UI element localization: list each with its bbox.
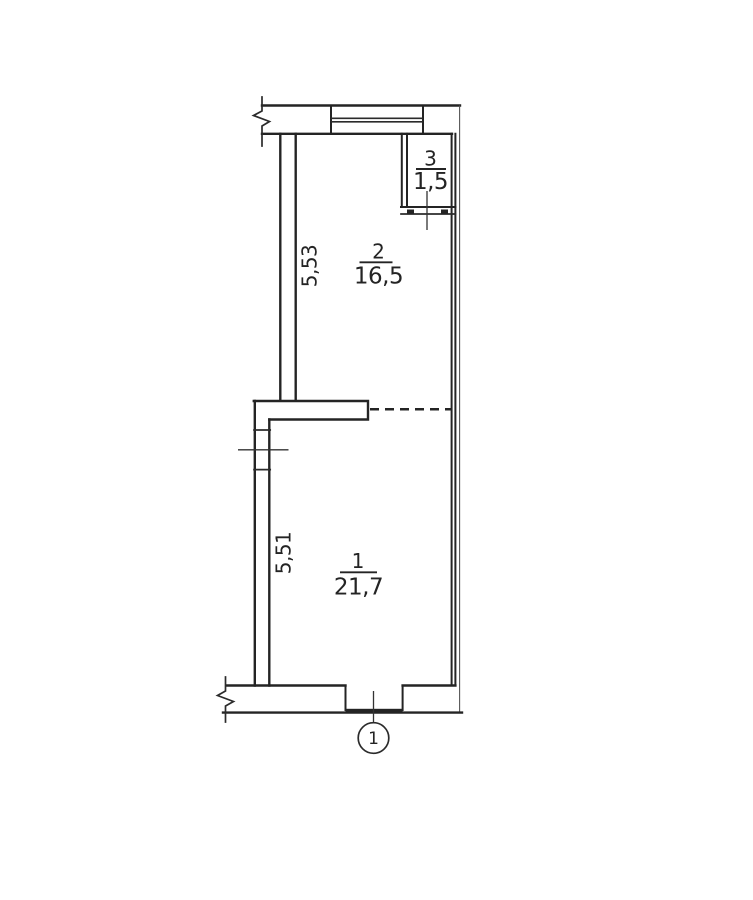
entrance-marker-label: 1	[368, 729, 379, 749]
wall-break-symbol-bottom	[218, 677, 234, 722]
room1-number-label: 1	[352, 549, 365, 573]
room2-number-label: 2	[372, 240, 385, 264]
room1-height-dimension: 5,51	[272, 532, 296, 575]
room3-number-label: 3	[424, 147, 437, 171]
room3-door-left-jamb	[407, 210, 414, 215]
room2-height-dimension: 5,53	[298, 245, 322, 288]
room3-door-right-jamb	[441, 210, 448, 215]
room2-area-label: 16,5	[354, 264, 403, 290]
floor-plan-canvas: 1 2 16,5 5,53 3 1,5 1 21,7 5,51	[0, 0, 753, 900]
room1-area-label: 21,7	[334, 575, 383, 601]
room3-area-label: 1,5	[413, 169, 448, 195]
partition-stub-wall	[254, 401, 368, 420]
floor-plan-drawing: 1 2 16,5 5,53 3 1,5 1 21,7 5,51	[0, 0, 753, 900]
